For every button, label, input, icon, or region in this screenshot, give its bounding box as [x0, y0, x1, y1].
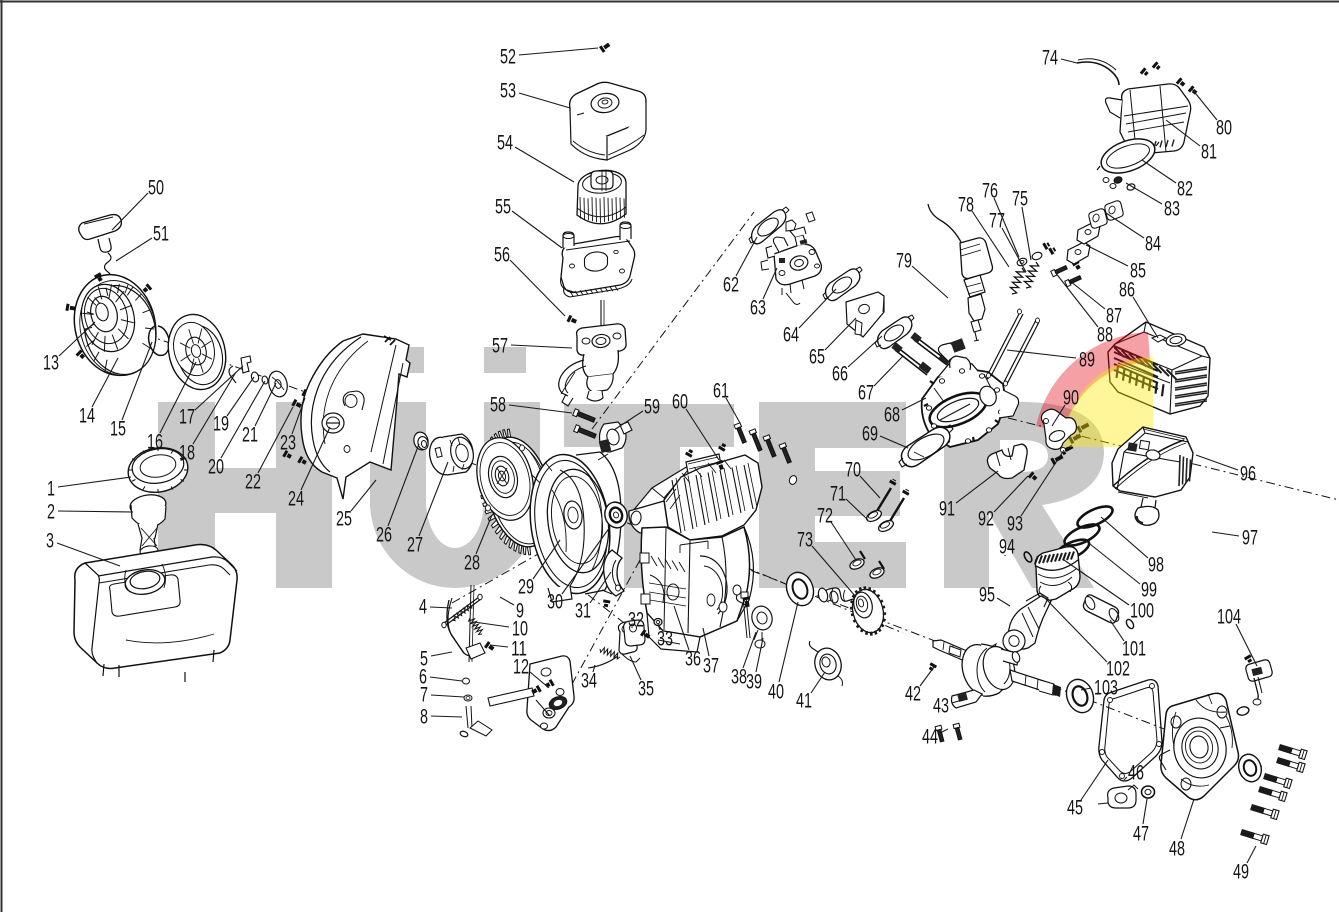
svg-text:64: 64: [783, 323, 799, 347]
svg-text:16: 16: [147, 430, 163, 454]
svg-text:56: 56: [494, 243, 510, 267]
svg-text:86: 86: [1119, 278, 1135, 302]
svg-text:8: 8: [420, 705, 428, 729]
svg-text:13: 13: [43, 351, 59, 375]
svg-text:21: 21: [242, 423, 258, 447]
svg-text:67: 67: [858, 381, 874, 405]
svg-text:98: 98: [1148, 553, 1164, 577]
svg-text:28: 28: [464, 551, 480, 575]
svg-text:27: 27: [407, 533, 423, 557]
svg-text:68: 68: [884, 403, 900, 427]
svg-text:63: 63: [750, 296, 766, 320]
svg-text:31: 31: [575, 599, 591, 623]
svg-text:34: 34: [581, 669, 597, 693]
svg-text:69: 69: [862, 422, 878, 446]
svg-text:95: 95: [979, 583, 995, 607]
svg-text:78: 78: [958, 193, 974, 217]
svg-text:84: 84: [1145, 232, 1161, 256]
svg-text:79: 79: [896, 249, 912, 273]
svg-text:40: 40: [768, 680, 784, 704]
svg-text:3: 3: [46, 529, 54, 553]
svg-text:25: 25: [336, 507, 352, 531]
svg-text:12: 12: [513, 655, 529, 679]
svg-text:19: 19: [213, 412, 229, 436]
svg-text:14: 14: [79, 404, 95, 428]
svg-text:92: 92: [978, 507, 994, 531]
svg-text:50: 50: [148, 176, 164, 200]
svg-text:37: 37: [703, 654, 719, 678]
svg-text:94: 94: [999, 535, 1015, 559]
svg-text:97: 97: [1242, 526, 1258, 550]
svg-text:24: 24: [288, 487, 304, 511]
svg-text:47: 47: [1133, 822, 1149, 846]
svg-text:88: 88: [1097, 323, 1113, 347]
svg-text:59: 59: [644, 395, 660, 419]
svg-text:81: 81: [1201, 140, 1217, 164]
svg-text:104: 104: [1217, 605, 1241, 629]
svg-text:17: 17: [179, 405, 195, 429]
svg-text:65: 65: [809, 345, 825, 369]
svg-text:53: 53: [500, 79, 516, 103]
svg-text:30: 30: [547, 590, 563, 614]
svg-text:58: 58: [490, 393, 506, 417]
svg-text:46: 46: [1128, 761, 1144, 785]
svg-text:38: 38: [731, 665, 747, 689]
svg-text:20: 20: [208, 455, 224, 479]
svg-text:4: 4: [419, 595, 427, 619]
svg-text:23: 23: [280, 431, 296, 455]
svg-text:54: 54: [497, 131, 513, 155]
svg-text:61: 61: [713, 379, 729, 403]
svg-text:2: 2: [47, 500, 55, 524]
svg-text:44: 44: [922, 725, 938, 749]
svg-text:76: 76: [982, 179, 998, 203]
svg-text:39: 39: [746, 670, 762, 694]
svg-text:66: 66: [832, 362, 848, 386]
svg-text:52: 52: [500, 45, 516, 69]
svg-text:100: 100: [1130, 599, 1154, 623]
svg-text:62: 62: [723, 273, 739, 297]
svg-text:48: 48: [1169, 837, 1185, 861]
svg-text:80: 80: [1216, 116, 1232, 140]
svg-text:57: 57: [492, 334, 508, 358]
svg-text:41: 41: [796, 689, 812, 713]
svg-text:60: 60: [672, 390, 688, 414]
svg-text:33: 33: [657, 627, 673, 651]
svg-text:55: 55: [495, 195, 511, 219]
svg-text:90: 90: [1063, 386, 1079, 410]
svg-text:29: 29: [518, 575, 534, 599]
svg-text:91: 91: [939, 497, 955, 521]
svg-text:70: 70: [845, 458, 861, 482]
svg-text:93: 93: [1007, 512, 1023, 536]
svg-text:7: 7: [420, 683, 428, 707]
svg-text:51: 51: [153, 222, 169, 246]
svg-text:42: 42: [905, 682, 921, 706]
svg-text:45: 45: [1067, 796, 1083, 820]
svg-text:15: 15: [110, 417, 126, 441]
svg-text:96: 96: [1240, 462, 1256, 486]
svg-text:1: 1: [47, 477, 55, 501]
svg-text:43: 43: [933, 694, 949, 718]
svg-text:22: 22: [245, 470, 261, 494]
svg-text:75: 75: [1012, 187, 1028, 211]
svg-text:36: 36: [685, 647, 701, 671]
svg-text:49: 49: [1233, 860, 1249, 884]
svg-text:26: 26: [376, 523, 392, 547]
svg-text:18: 18: [179, 441, 195, 465]
svg-text:72: 72: [817, 504, 833, 528]
svg-text:35: 35: [638, 677, 654, 701]
svg-text:32: 32: [628, 608, 644, 632]
svg-text:103: 103: [1094, 676, 1118, 700]
svg-text:89: 89: [1079, 348, 1095, 372]
svg-text:71: 71: [830, 482, 846, 506]
svg-text:73: 73: [797, 528, 813, 552]
svg-text:83: 83: [1164, 197, 1180, 221]
svg-text:74: 74: [1042, 46, 1058, 70]
svg-text:77: 77: [989, 209, 1005, 233]
